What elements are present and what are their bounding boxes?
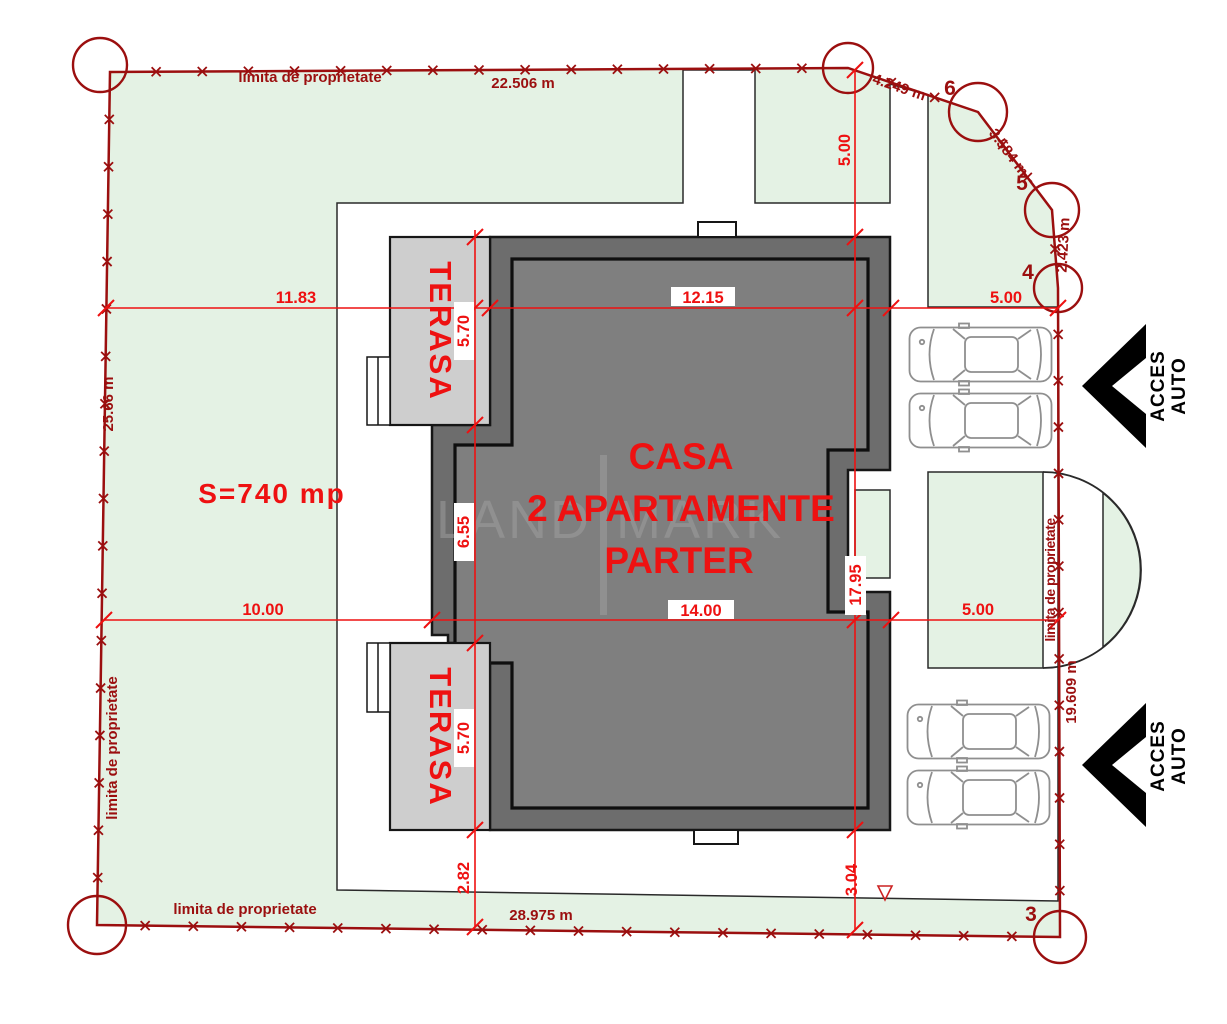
boundary-label-right: limita de proprietate (1042, 518, 1058, 642)
access-arrow-bottom-icon (1082, 703, 1146, 827)
terrace-top-label: TERASA (423, 261, 458, 400)
dim-setback-bottom-left: 2.82 (455, 862, 473, 894)
dim-mid-section: 6.55 (455, 516, 473, 548)
dim-terrace-top: 5.70 (455, 315, 473, 347)
point-label-6: 6 (944, 77, 956, 100)
boundary-length-ne3: 2.423 m (1054, 217, 1074, 273)
boundary-label-left: limita de proprietate (104, 676, 121, 819)
access-label-top: ACCES AUTO (1148, 350, 1190, 422)
dim-terrace-bottom: 5.70 (455, 722, 473, 754)
access-label-bottom: ACCES AUTO (1148, 720, 1190, 792)
dim-setback-bottom-right: 3.04 (843, 863, 861, 896)
building-top-bump (698, 222, 736, 237)
access-bottom-line2: AUTO (1169, 727, 1190, 784)
terrace-bottom-label: TERASA (423, 667, 458, 806)
building-title-line1: CASA (629, 436, 734, 477)
site-plan-page: LAND MARK S=740 mp CASA 2 APARTAMENTE PA… (0, 0, 1227, 1024)
boundary-label-bottom: limita de proprietate (173, 901, 316, 918)
dim-upper-left: 11.83 (276, 289, 316, 307)
building-bottom-bump (694, 830, 738, 844)
boundary-length-right: 19.609 m (1063, 660, 1080, 723)
dim-setback-top: 5.00 (836, 134, 854, 166)
watermark-bar (600, 455, 607, 615)
survey-point-top-left (73, 38, 127, 92)
dim-lower-mid: 14.00 (680, 602, 721, 620)
access-bottom-line1: ACCES (1148, 720, 1169, 792)
dim-upper-right: 5.00 (990, 289, 1022, 307)
access-top-line1: ACCES (1148, 350, 1169, 422)
access-top-line2: AUTO (1169, 357, 1190, 414)
point-label-3: 3 (1025, 903, 1037, 926)
dim-lower-left: 10.00 (242, 601, 283, 619)
boundary-label-top: limita de proprietate (238, 69, 381, 86)
access-arrow-top-icon (1082, 324, 1146, 448)
building-title-line3: PARTER (604, 540, 753, 581)
car-2 (910, 390, 1052, 452)
terrace-top-steps (367, 357, 390, 425)
dim-building-height: 17.95 (847, 564, 865, 605)
boundary-length-top: 22.506 m (491, 75, 554, 92)
car-3 (908, 701, 1050, 763)
building-title-line2: 2 APARTAMENTE (527, 488, 835, 529)
boundary-length-left: 25.66 m (100, 376, 117, 431)
car-1 (910, 324, 1052, 386)
driveway-green (928, 472, 1043, 668)
terrace-bottom-steps (367, 643, 390, 712)
dim-upper-mid: 12.15 (682, 289, 723, 307)
dim-lower-right: 5.00 (962, 601, 994, 619)
site-plan-svg: LAND MARK S=740 mp CASA 2 APARTAMENTE PA… (0, 0, 1227, 1024)
turning-arc-lens (1103, 493, 1140, 647)
area-label: S=740 mp (198, 478, 346, 509)
boundary-length-bottom: 28.975 m (509, 907, 572, 924)
point-label-5: 5 (1016, 172, 1028, 195)
point-label-4: 4 (1022, 261, 1034, 284)
car-4 (908, 767, 1050, 829)
